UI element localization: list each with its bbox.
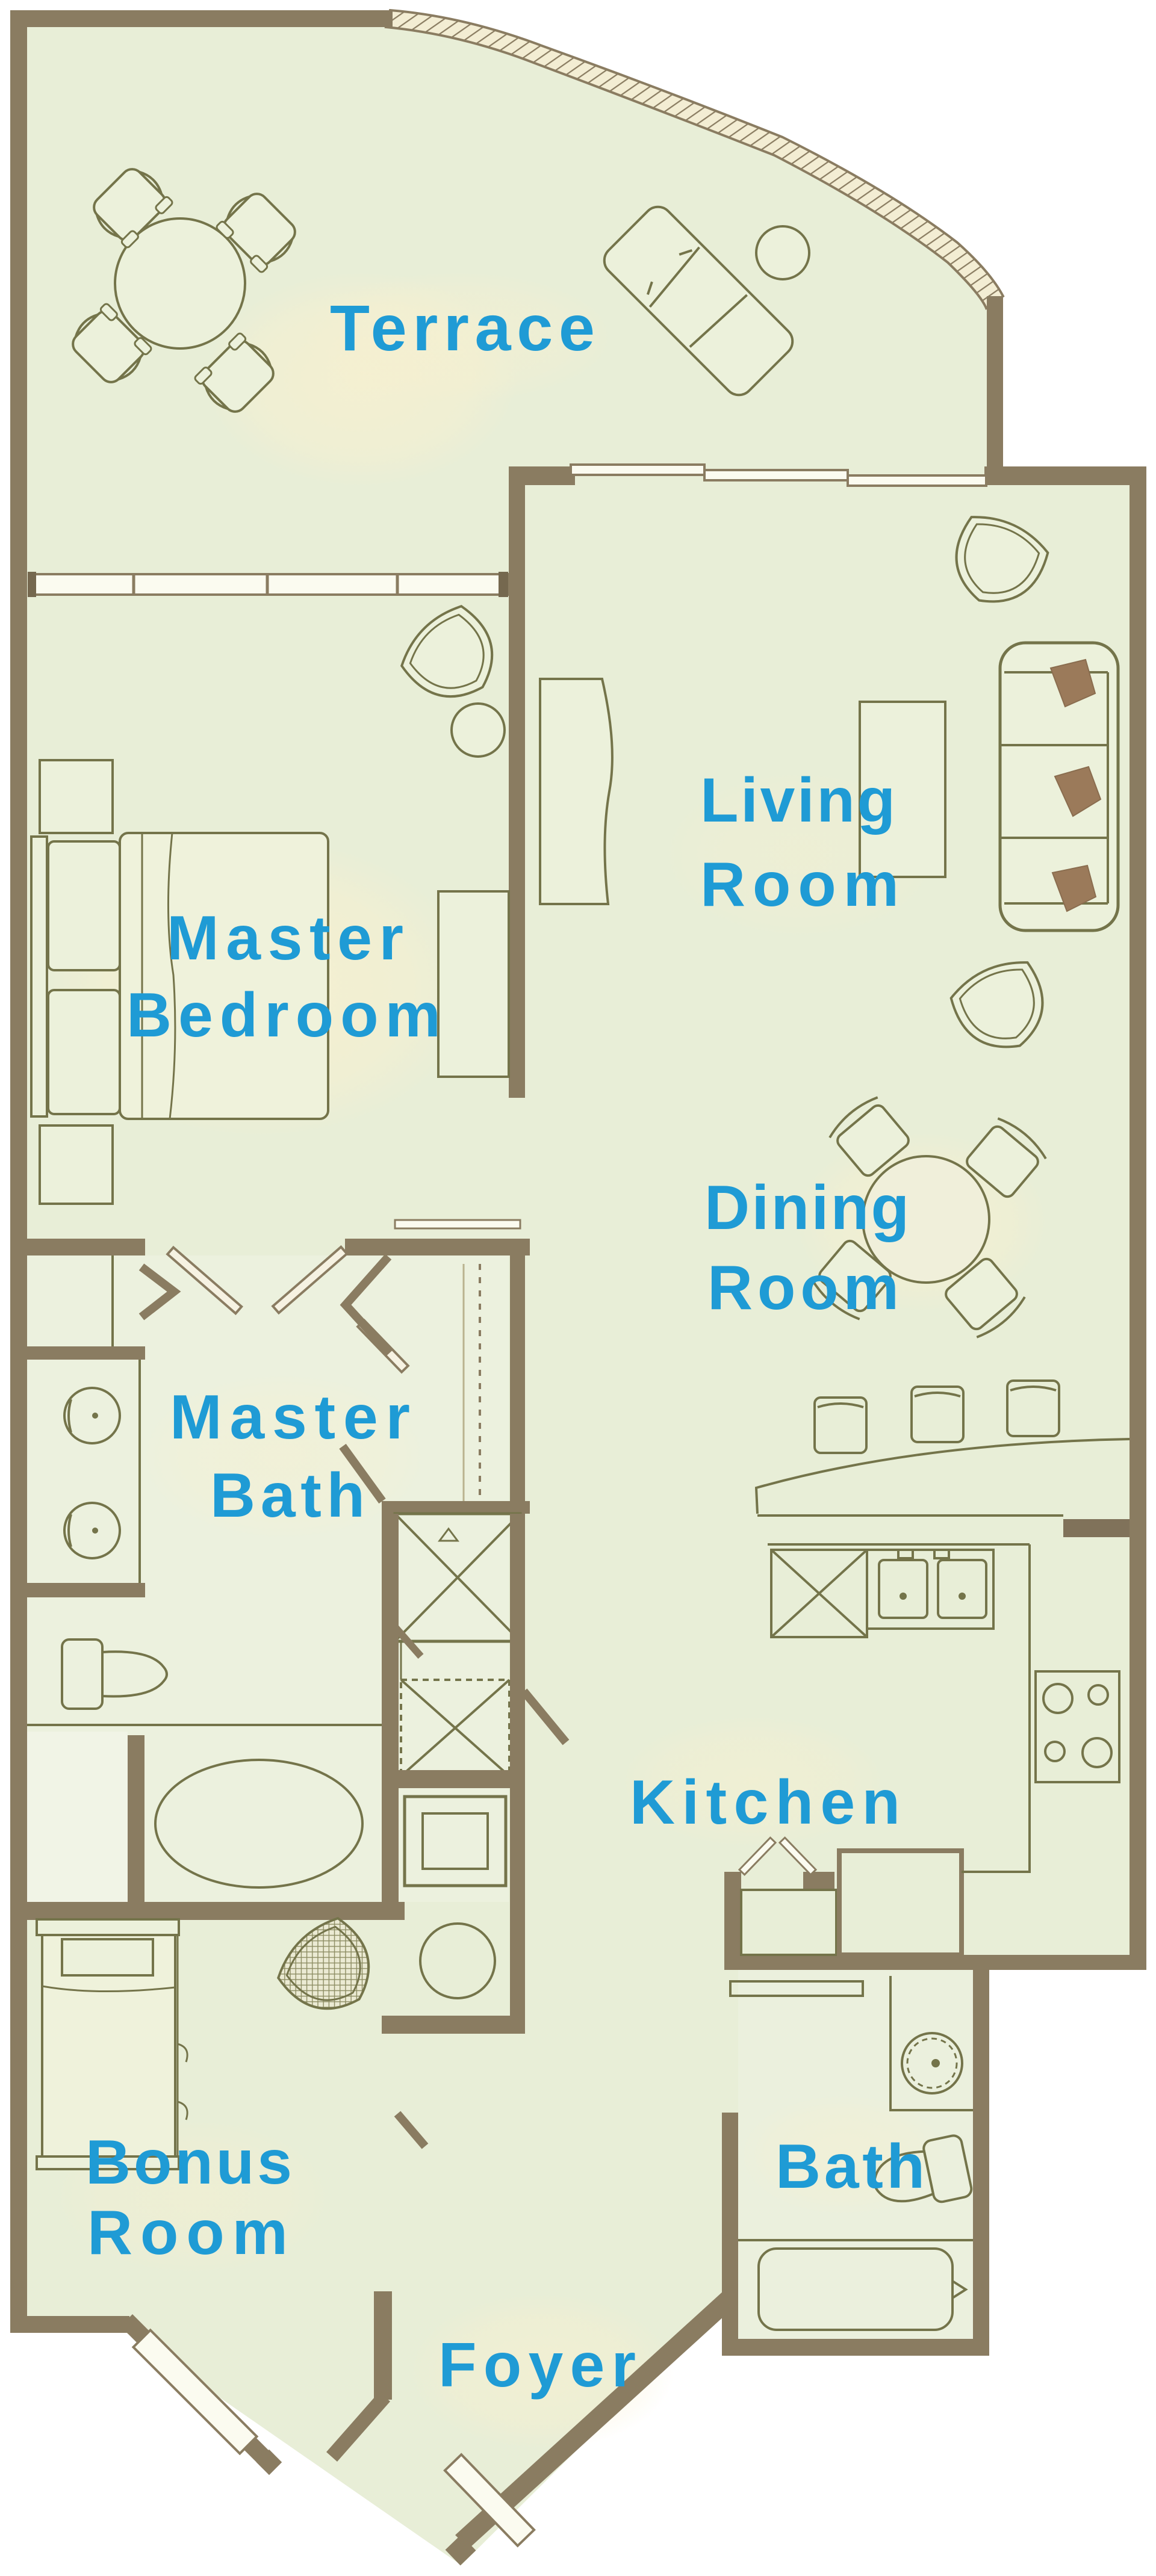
svg-text:Master: Master — [167, 903, 403, 973]
svg-text:Room: Room — [87, 2198, 288, 2268]
svg-text:Dining: Dining — [704, 1173, 909, 1243]
svg-text:Bath: Bath — [775, 2132, 925, 2202]
svg-text:Bath: Bath — [210, 1461, 365, 1531]
svg-text:Room: Room — [707, 1253, 899, 1323]
svg-text:Room: Room — [700, 850, 899, 920]
svg-text:Master: Master — [170, 1382, 410, 1452]
svg-text:Living: Living — [700, 766, 895, 835]
svg-text:Bonus: Bonus — [85, 2128, 292, 2197]
